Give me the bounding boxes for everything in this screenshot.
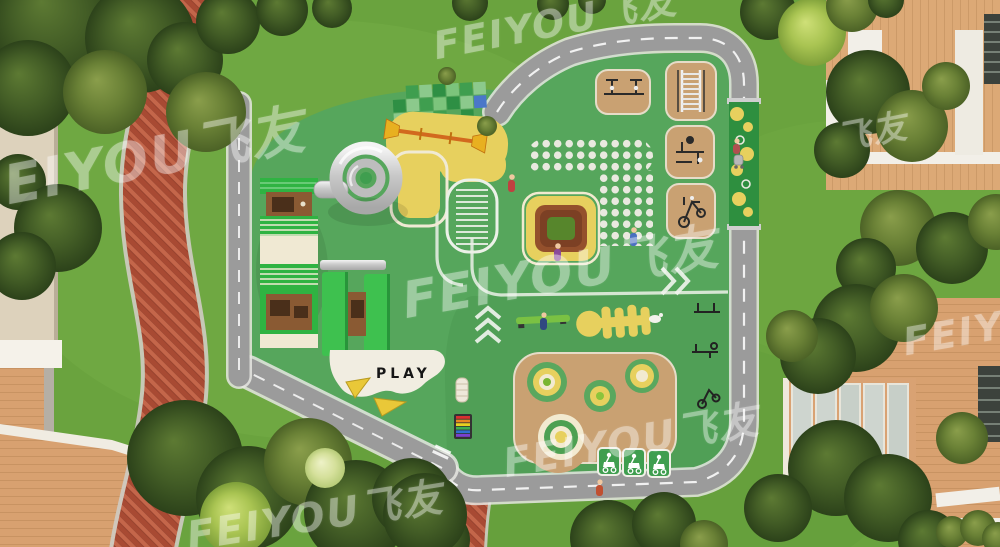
dotted-road-crossing [727,98,761,230]
play-ground-label: PLAY [376,366,431,382]
scene-canvas [0,0,1000,547]
playground-aerial-render: PLAY FEIYOU飞友 FEIYOU飞友 FEIYOU飞友 FEIYOU飞友… [0,0,1000,547]
target-4 [538,414,584,460]
rainbow-ladder [454,414,472,439]
roller [456,378,468,402]
target-2 [584,380,616,412]
stroller-parking-signs [598,448,670,477]
target-3 [625,359,659,393]
target-1 [527,362,567,402]
